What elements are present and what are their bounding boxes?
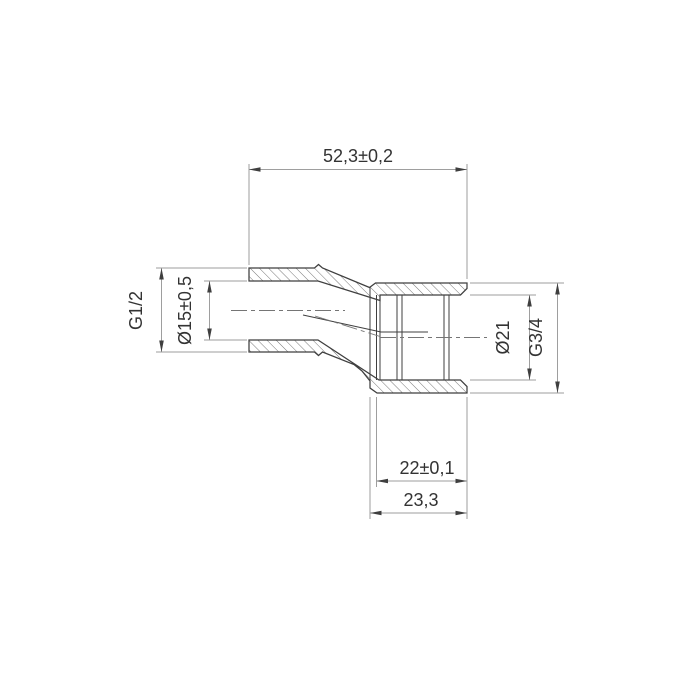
dimension-socket-depth-label: 22±0,1 — [400, 458, 455, 478]
dimension-thread-left-label: G1/2 — [126, 291, 146, 330]
dimension-bore-right-label: Ø21 — [493, 320, 513, 354]
part-top-wall — [249, 265, 467, 301]
dimension-thread-right-label: G3/4 — [526, 318, 546, 357]
socket-interior-lines — [370, 288, 449, 382]
bore-edge-line — [303, 315, 428, 332]
part-cross-section — [249, 265, 467, 394]
dimension-thread-right: G3/4 — [470, 283, 564, 393]
dimension-overall-length-label: 52,3±0,2 — [323, 146, 393, 166]
drawing-canvas: 52,3±0,2 G1/2 Ø15±0,5 Ø21 G3/4 22±0,1 — [0, 0, 700, 700]
dimension-overall-length: 52,3±0,2 — [249, 146, 467, 279]
dimension-bore-left-label: Ø15±0,5 — [175, 276, 195, 345]
part-bottom-wall — [249, 340, 467, 393]
technical-drawing: 52,3±0,2 G1/2 Ø15±0,5 Ø21 G3/4 22±0,1 — [0, 0, 700, 700]
dimension-socket-length-label: 23,3 — [403, 490, 438, 510]
